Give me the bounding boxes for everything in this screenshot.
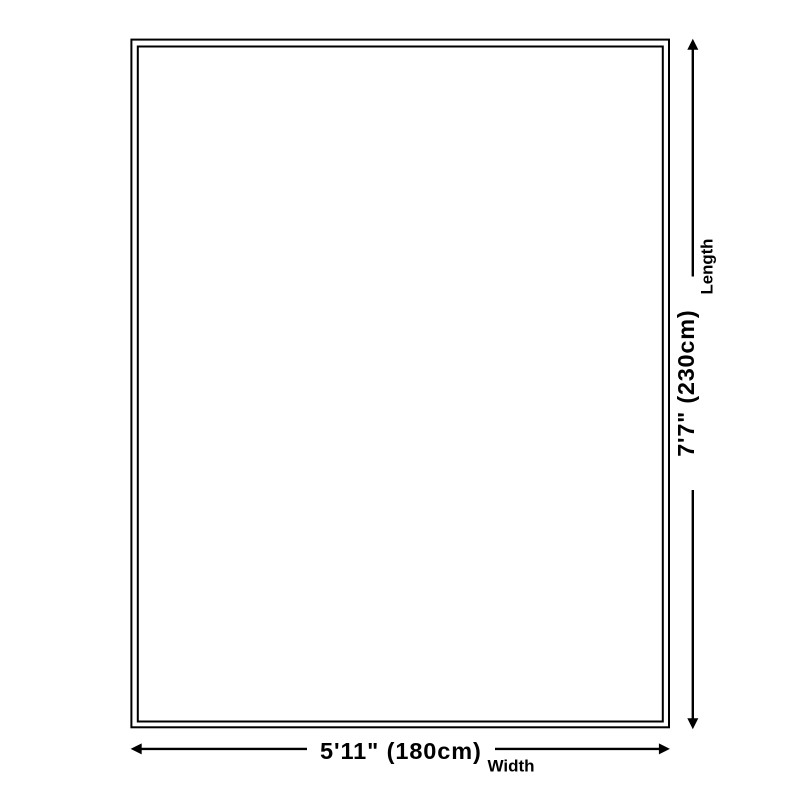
svg-text:Width: Width <box>488 757 535 776</box>
svg-text:Length: Length <box>698 239 717 295</box>
svg-text:5'11" (180cm): 5'11" (180cm) <box>320 738 482 764</box>
svg-text:7'7" (230cm): 7'7" (230cm) <box>673 310 699 457</box>
